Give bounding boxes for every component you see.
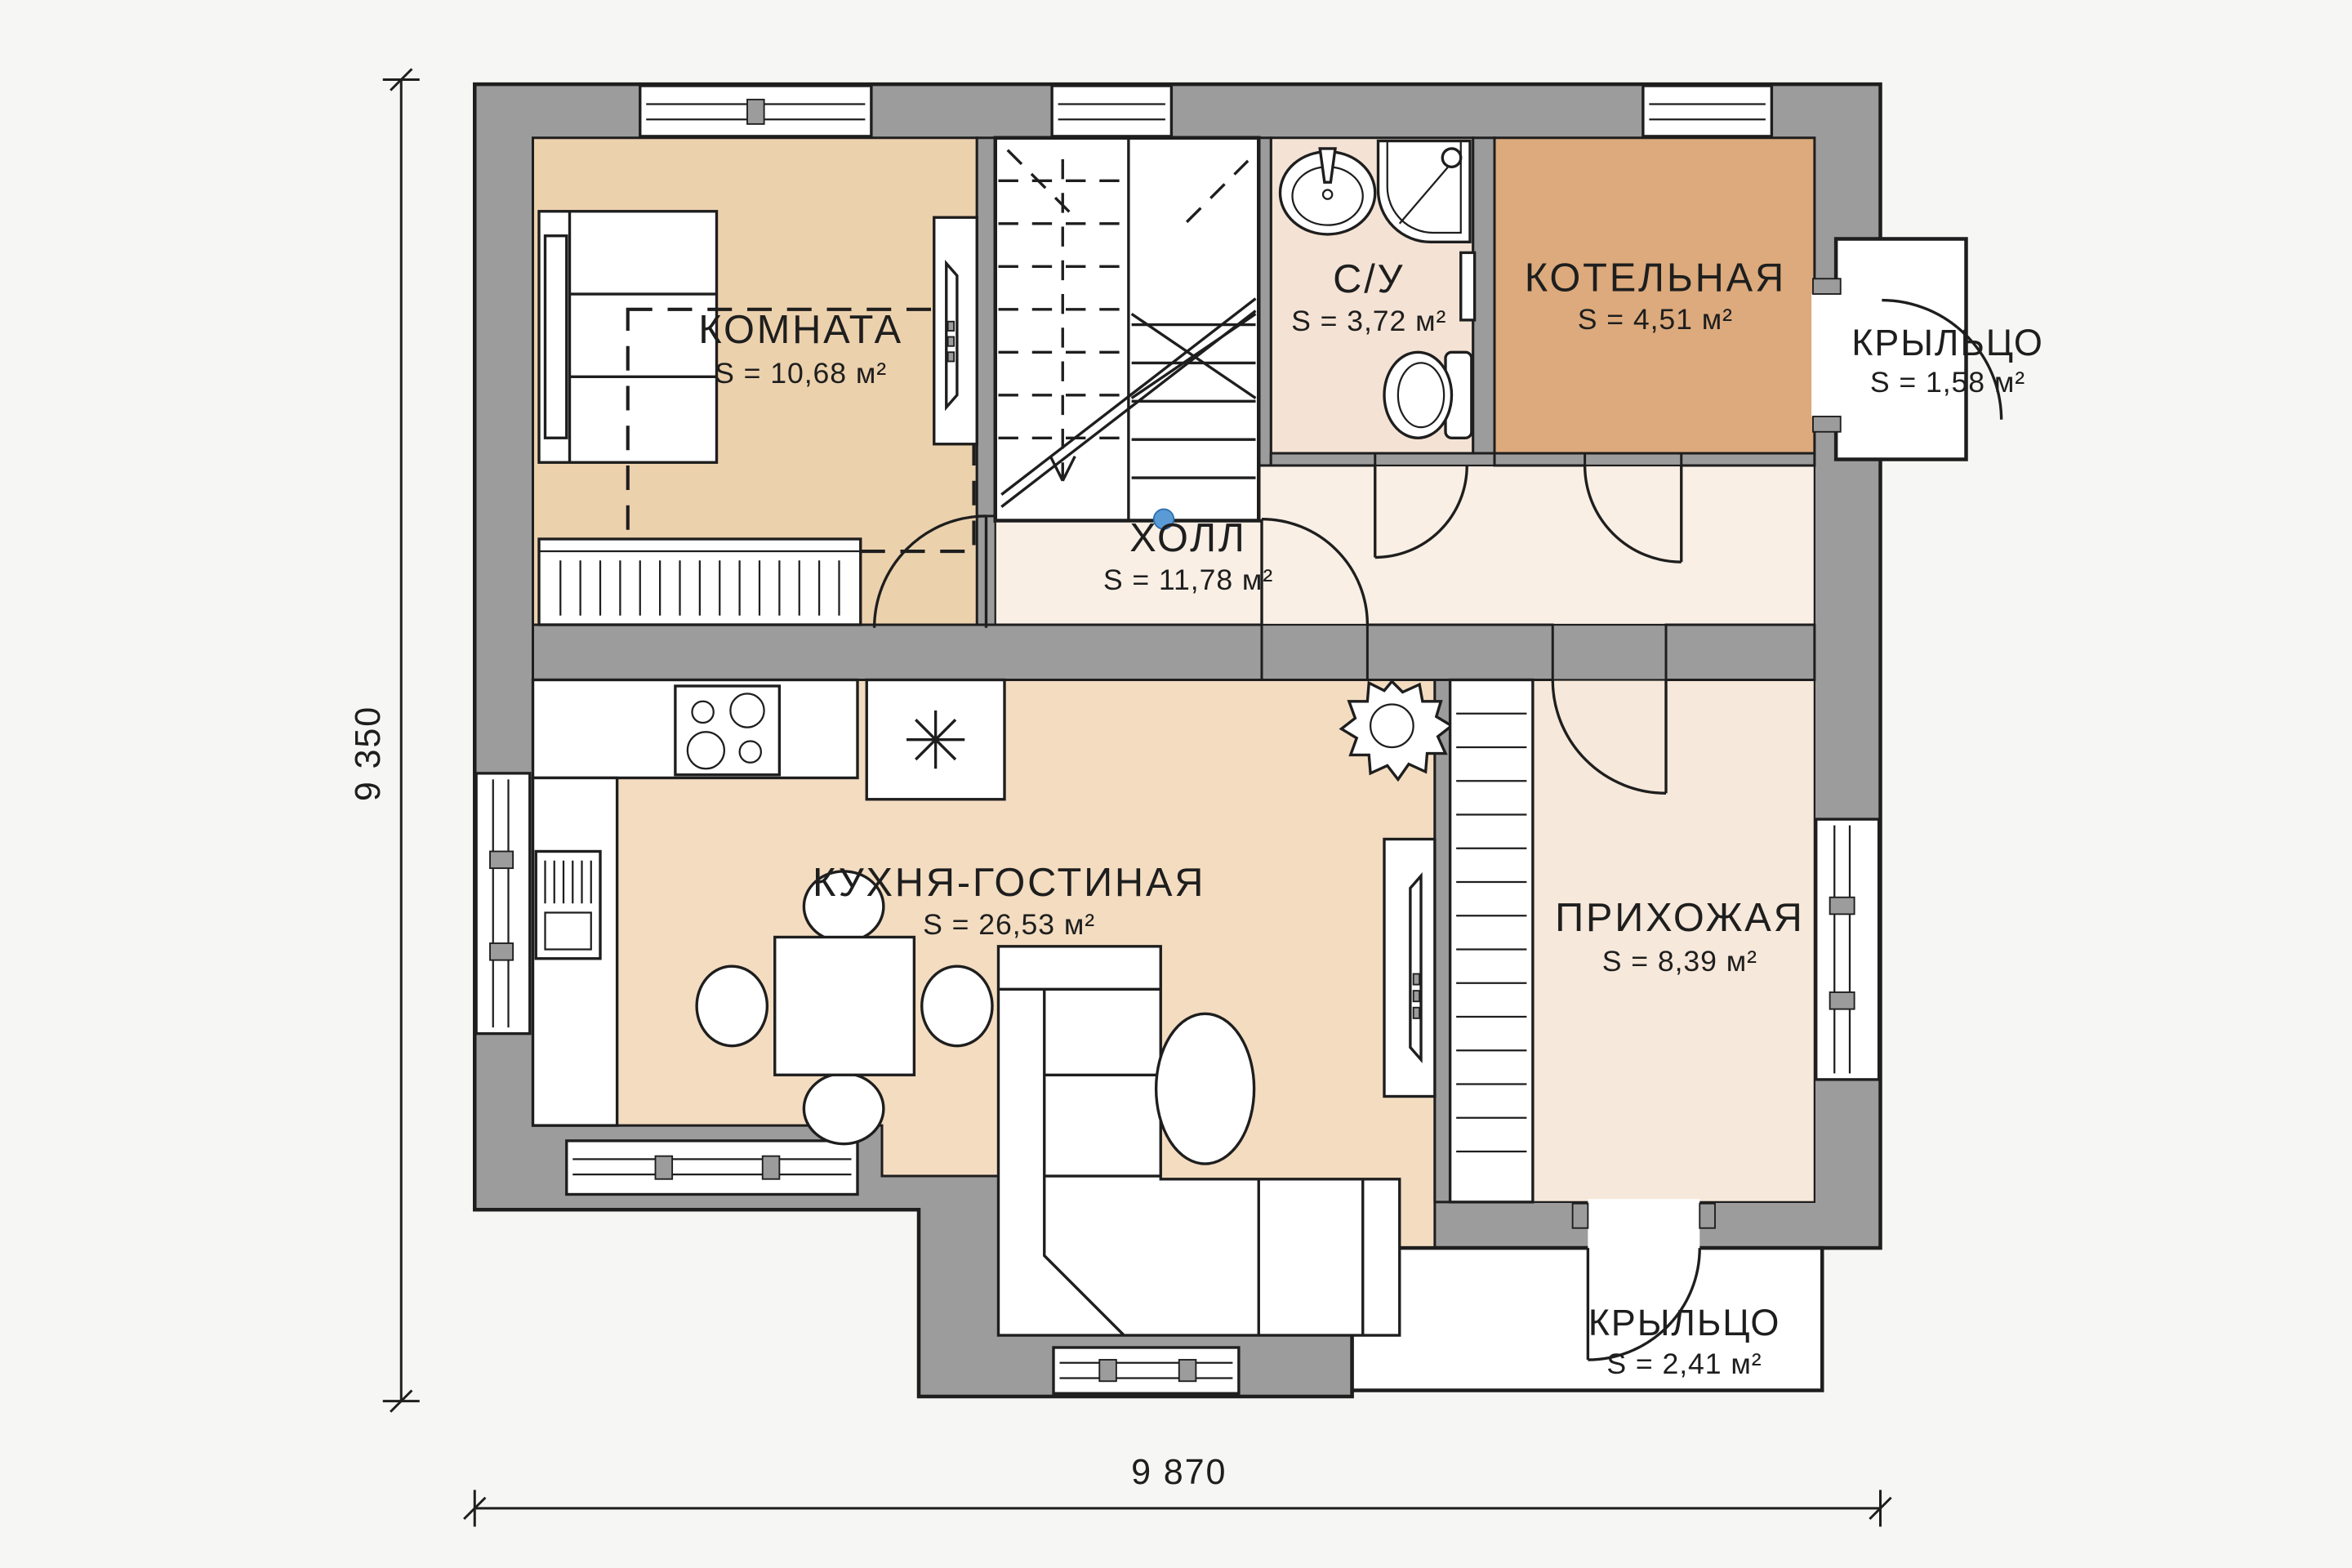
coffee-table	[1156, 1013, 1254, 1164]
area-su: S = 3,72 м²	[1291, 305, 1446, 337]
door-opening-porch-bottom	[1588, 1199, 1699, 1251]
wardrobe	[539, 539, 861, 625]
wall-hall-south-a	[533, 625, 1263, 680]
wall-su-kotelnaya	[1473, 138, 1494, 453]
window-kitchen-left	[476, 773, 530, 1034]
door-jamb	[1813, 416, 1841, 432]
closet-shelves	[1450, 680, 1533, 1202]
area-holl: S = 11,78 м²	[1103, 563, 1273, 596]
tv-unit-living	[1384, 840, 1435, 1097]
floor-plan-page: { "plan": { "rooms": { "komnata": {"name…	[0, 0, 2352, 1568]
area-kuhnya: S = 26,53 м²	[923, 908, 1095, 941]
area-kryltso-bottom: S = 2,41 м²	[1606, 1347, 1762, 1380]
window-kitchen-bottom-left	[567, 1141, 857, 1195]
fridge	[866, 680, 1004, 800]
kitchen-sink-unit	[536, 852, 600, 959]
wall-kitchen-prihozhaya	[1435, 680, 1450, 1202]
window-kotelnaya-top	[1643, 86, 1772, 136]
label-kuhnya: КУХНЯ-ГОСТИНАЯ	[813, 861, 1205, 905]
label-holl: ХОЛЛ	[1129, 516, 1247, 560]
dimension-height-value: 9 350	[349, 706, 388, 801]
dimension-height: 9 350	[349, 69, 420, 1411]
bed	[539, 212, 717, 463]
wall-kotelnaya-bottom-right	[1682, 453, 1815, 465]
label-kotelnaya: КОТЕЛЬНАЯ	[1525, 256, 1786, 300]
door-jamb	[1699, 1204, 1715, 1228]
area-kryltso-top: S = 1,58 м²	[1870, 366, 2025, 399]
label-kryltso-top: КРЫЛЬЦО	[1851, 322, 2044, 363]
window-prihozhaya-right	[1816, 819, 1879, 1080]
tv-unit-komnata	[934, 217, 978, 444]
stove	[675, 686, 780, 775]
door-jamb	[1573, 1204, 1588, 1228]
wall-kotelnaya-bottom-left	[1494, 453, 1585, 465]
toilet	[1384, 352, 1472, 438]
area-kotelnaya: S = 4,51 м²	[1578, 303, 1733, 336]
floor-plan-drawing: КОМНАТА S = 10,68 м² С/У S = 3,72 м² КОТ…	[0, 0, 2352, 1568]
dimension-width-value: 9 870	[1131, 1453, 1227, 1492]
area-komnata: S = 10,68 м²	[715, 357, 887, 390]
wall-komnata-stairs	[977, 138, 996, 516]
wall-su-bottom	[1271, 453, 1375, 465]
label-prihozhaya: ПРИХОЖАЯ	[1555, 896, 1805, 940]
label-su: С/У	[1333, 257, 1405, 301]
window-stairs-top	[1052, 86, 1171, 136]
window-kitchen-bottom	[1053, 1347, 1239, 1393]
window-komnata-top	[640, 86, 871, 136]
door-jamb	[1813, 278, 1841, 294]
dimension-width: 9 870	[464, 1453, 1891, 1526]
stairs	[996, 138, 1259, 529]
wall-hall-south-c	[1666, 625, 1815, 680]
label-komnata: КОМНАТА	[698, 308, 903, 352]
bed-pillow	[546, 236, 567, 439]
label-kryltso-bottom: КРЫЛЬЦО	[1588, 1302, 1781, 1343]
wall-hall-south-b	[1367, 625, 1552, 680]
area-prihozhaya: S = 8,39 м²	[1602, 945, 1757, 978]
